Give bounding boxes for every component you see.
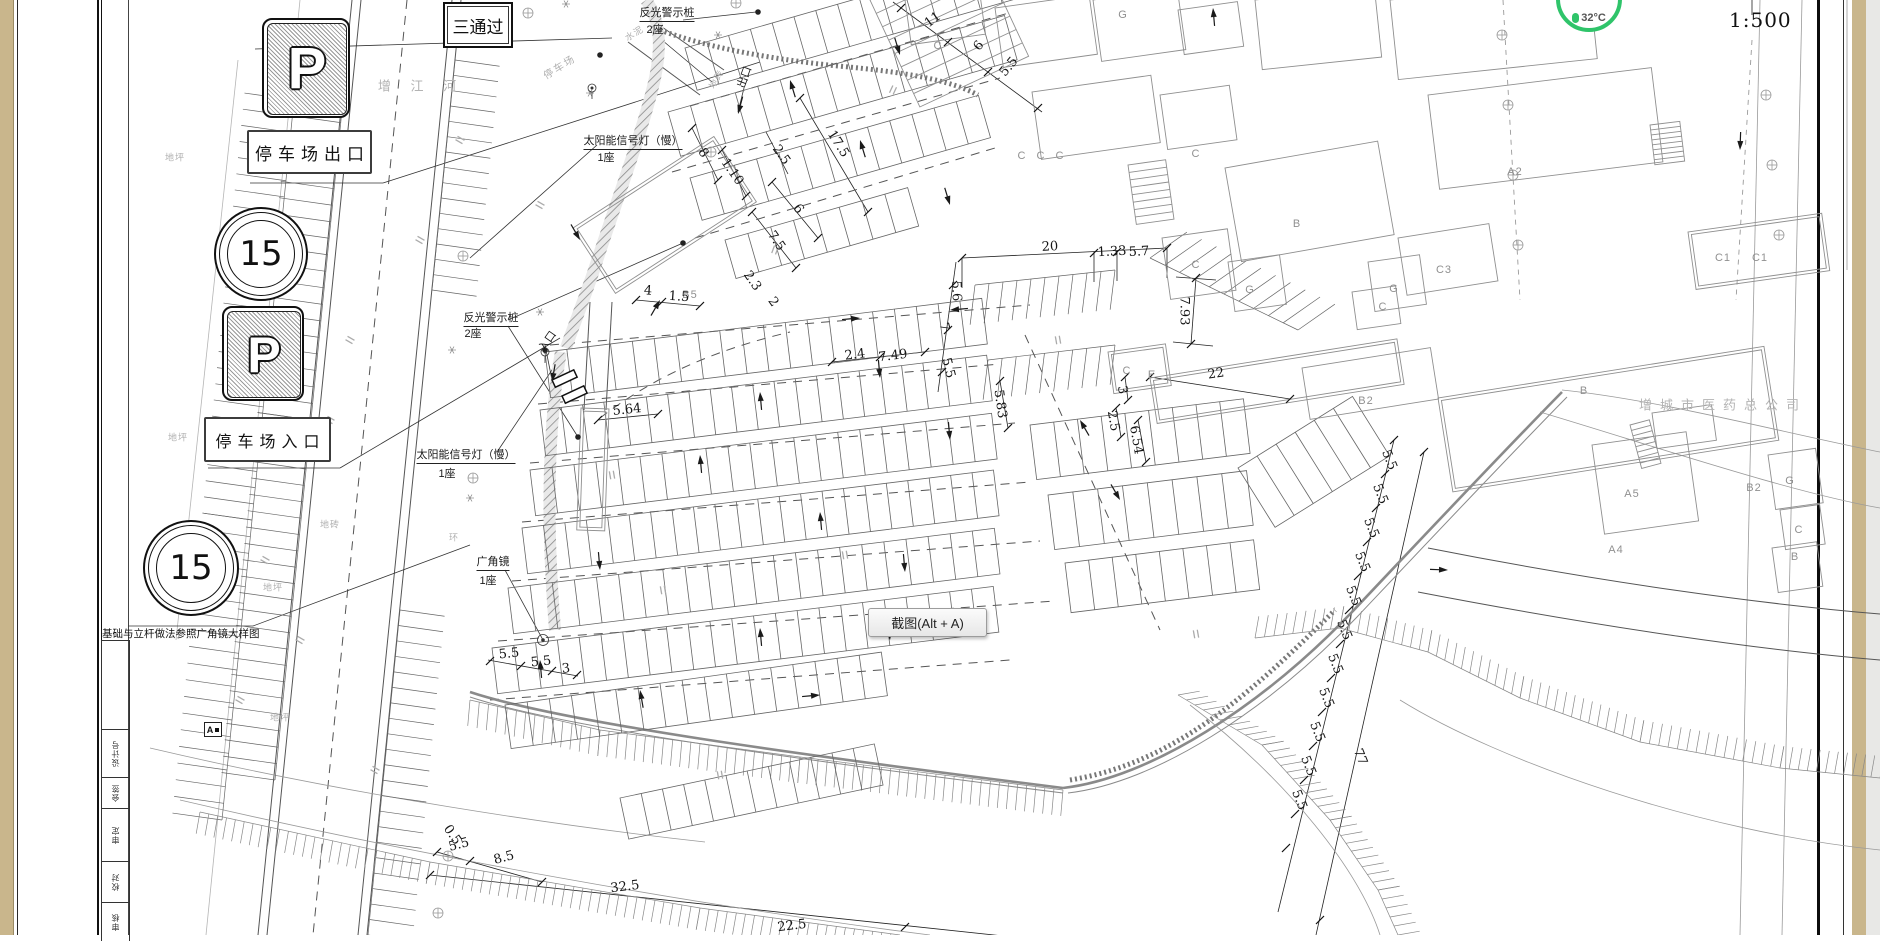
detail-marker-a: A bbox=[204, 722, 222, 737]
parking-sign-bottom: P bbox=[222, 306, 304, 401]
plan-label: 地坪 bbox=[168, 431, 188, 444]
drawing-sheet: 三通过 P 停车场出口 15 P 停车场入口 15 基础与立杆做法参照广角镜大样… bbox=[0, 0, 1880, 935]
titleblock-cell: 会签 bbox=[102, 777, 129, 808]
dimension-text: 5.7 bbox=[1128, 244, 1149, 260]
building-label: E bbox=[1148, 369, 1156, 381]
detail-marker-letter: A bbox=[207, 725, 214, 735]
plan-label: 太阳能信号灯（慢） bbox=[417, 446, 516, 464]
dimension-text: 5.64 bbox=[612, 401, 642, 419]
building-label: C bbox=[1123, 365, 1132, 377]
plan-label: 地坪 bbox=[263, 581, 283, 594]
titleblock-strip: 设计号会签审定校对审核 bbox=[101, 640, 130, 941]
plan-label: 广角镜 bbox=[477, 553, 510, 571]
building-label: C bbox=[1192, 259, 1201, 271]
building-label: G bbox=[1785, 475, 1795, 487]
aisle-arrow-icon bbox=[945, 422, 953, 440]
plan-label: 1座 bbox=[479, 572, 496, 588]
aisle-arrow-icon bbox=[1430, 566, 1448, 573]
building-label: C3 bbox=[1436, 264, 1452, 276]
dimension-text: 5.5 bbox=[530, 653, 552, 670]
plan-label: 2座 bbox=[464, 325, 481, 341]
entrance-label: 停车场入口 bbox=[209, 428, 325, 452]
dimension-text: 4 bbox=[643, 283, 652, 299]
plan-label: 1座 bbox=[438, 465, 455, 481]
building-label: C bbox=[1056, 150, 1065, 162]
plan-label: 增 江 河 bbox=[378, 76, 464, 95]
building-label: B bbox=[1580, 385, 1588, 397]
dimension-text: 3 bbox=[561, 661, 571, 677]
plan-label: 太阳能信号灯（慢） bbox=[584, 132, 683, 150]
building-label: C bbox=[1795, 524, 1804, 536]
plan-label: 地坪 bbox=[270, 711, 290, 724]
dimension-text: 2.4 bbox=[844, 346, 866, 363]
speed-limit-sign-top: 15 bbox=[214, 207, 308, 301]
dimension-text: 5.5 bbox=[498, 645, 520, 662]
plan-label: 增城市医药总公司 bbox=[1639, 395, 1807, 414]
parking-p-icon: P bbox=[247, 330, 280, 380]
screenshot-tooltip[interactable]: 截图(Alt + A) bbox=[868, 608, 987, 637]
building-label: C bbox=[1192, 148, 1201, 160]
building-label: C1 bbox=[1752, 252, 1768, 264]
weather-temp: 32°C bbox=[1581, 12, 1606, 24]
building-label: B2 bbox=[1746, 482, 1761, 494]
dimension-text: 5.6 bbox=[948, 280, 964, 301]
scale-label: 1:500 bbox=[1729, 8, 1792, 32]
sign-pass: 三通过 bbox=[443, 2, 513, 48]
aisle-arrow-icon bbox=[595, 552, 603, 570]
sign-pass-label: 三通过 bbox=[453, 13, 504, 38]
titleblock-cell: 审定 bbox=[102, 808, 129, 861]
building-label: C bbox=[1037, 150, 1046, 162]
titleblock-cell: 设计号 bbox=[102, 729, 129, 777]
post-dot bbox=[755, 9, 761, 15]
aisle-arrow-icon bbox=[1737, 132, 1744, 150]
plan-label: 反光警示桩 bbox=[640, 4, 695, 22]
dimension-text: 1.5 bbox=[668, 289, 690, 305]
dimension-text: 22 bbox=[1207, 365, 1225, 382]
building-label: B bbox=[1293, 218, 1301, 230]
plan-label: 地砖 bbox=[320, 518, 340, 531]
post-dot bbox=[575, 434, 581, 440]
screenshot-tooltip-label: 截图(Alt + A) bbox=[891, 613, 964, 632]
post-dot bbox=[597, 52, 603, 58]
aisle-arrow-icon bbox=[857, 139, 868, 158]
aisle-arrow-icon bbox=[787, 79, 798, 98]
building-label: G bbox=[1389, 283, 1399, 295]
building-label: C bbox=[1379, 301, 1388, 313]
speed-limit-value: 15 bbox=[239, 234, 282, 274]
dimension-text: 1.33 bbox=[1097, 244, 1127, 260]
aisle-arrow-icon bbox=[757, 628, 765, 646]
exit-label-box: 停车场出口 bbox=[247, 130, 372, 174]
thermometer-icon bbox=[1572, 13, 1579, 23]
plan-label: 地坪 bbox=[165, 151, 185, 164]
building-label: B bbox=[1791, 551, 1799, 563]
plan-label: 1座 bbox=[597, 149, 614, 165]
post-dot bbox=[680, 240, 686, 246]
building-label: C bbox=[934, 40, 943, 52]
building-label: A2 bbox=[1507, 166, 1522, 178]
building-label: C bbox=[1018, 150, 1027, 162]
footing-note: 基础与立杆做法参照广角镜大样图 bbox=[102, 626, 260, 641]
aisle-arrow-icon bbox=[942, 187, 953, 206]
parking-p-icon: P bbox=[288, 40, 327, 98]
dimension-text: 20 bbox=[1041, 239, 1058, 255]
speed-limit-sign-bottom: 15 bbox=[143, 520, 239, 616]
aisle-arrow-icon bbox=[757, 392, 765, 410]
building-label: G bbox=[1245, 284, 1255, 296]
plan-label: 环 bbox=[449, 531, 459, 544]
aisle-arrow-icon bbox=[802, 692, 820, 700]
exit-label: 停车场出口 bbox=[249, 140, 370, 165]
aisle-arrow-icon bbox=[817, 512, 825, 530]
aisle-arrow-icon bbox=[842, 315, 860, 323]
plan-label: 2座 bbox=[646, 21, 663, 37]
building-label: B2 bbox=[1358, 395, 1373, 407]
titleblock-cell: 审核 bbox=[102, 902, 129, 941]
building-label: A4 bbox=[1608, 544, 1623, 556]
aisle-arrow-icon bbox=[900, 554, 908, 572]
aisle-arrow-icon bbox=[697, 455, 705, 473]
parking-sign-top: P bbox=[262, 18, 350, 118]
titleblock-cell bbox=[102, 640, 129, 729]
titleblock-cell: 校对 bbox=[102, 861, 129, 902]
speed-limit-value: 15 bbox=[169, 548, 212, 588]
building-label: C1 bbox=[1715, 252, 1731, 264]
building-label: A5 bbox=[1624, 488, 1639, 500]
building-label: G bbox=[1118, 9, 1128, 21]
entrance-label-box: 停车场入口 bbox=[204, 417, 331, 462]
dimension-text: 7.93 bbox=[1177, 297, 1192, 326]
aisle-arrow-icon bbox=[1210, 8, 1218, 26]
